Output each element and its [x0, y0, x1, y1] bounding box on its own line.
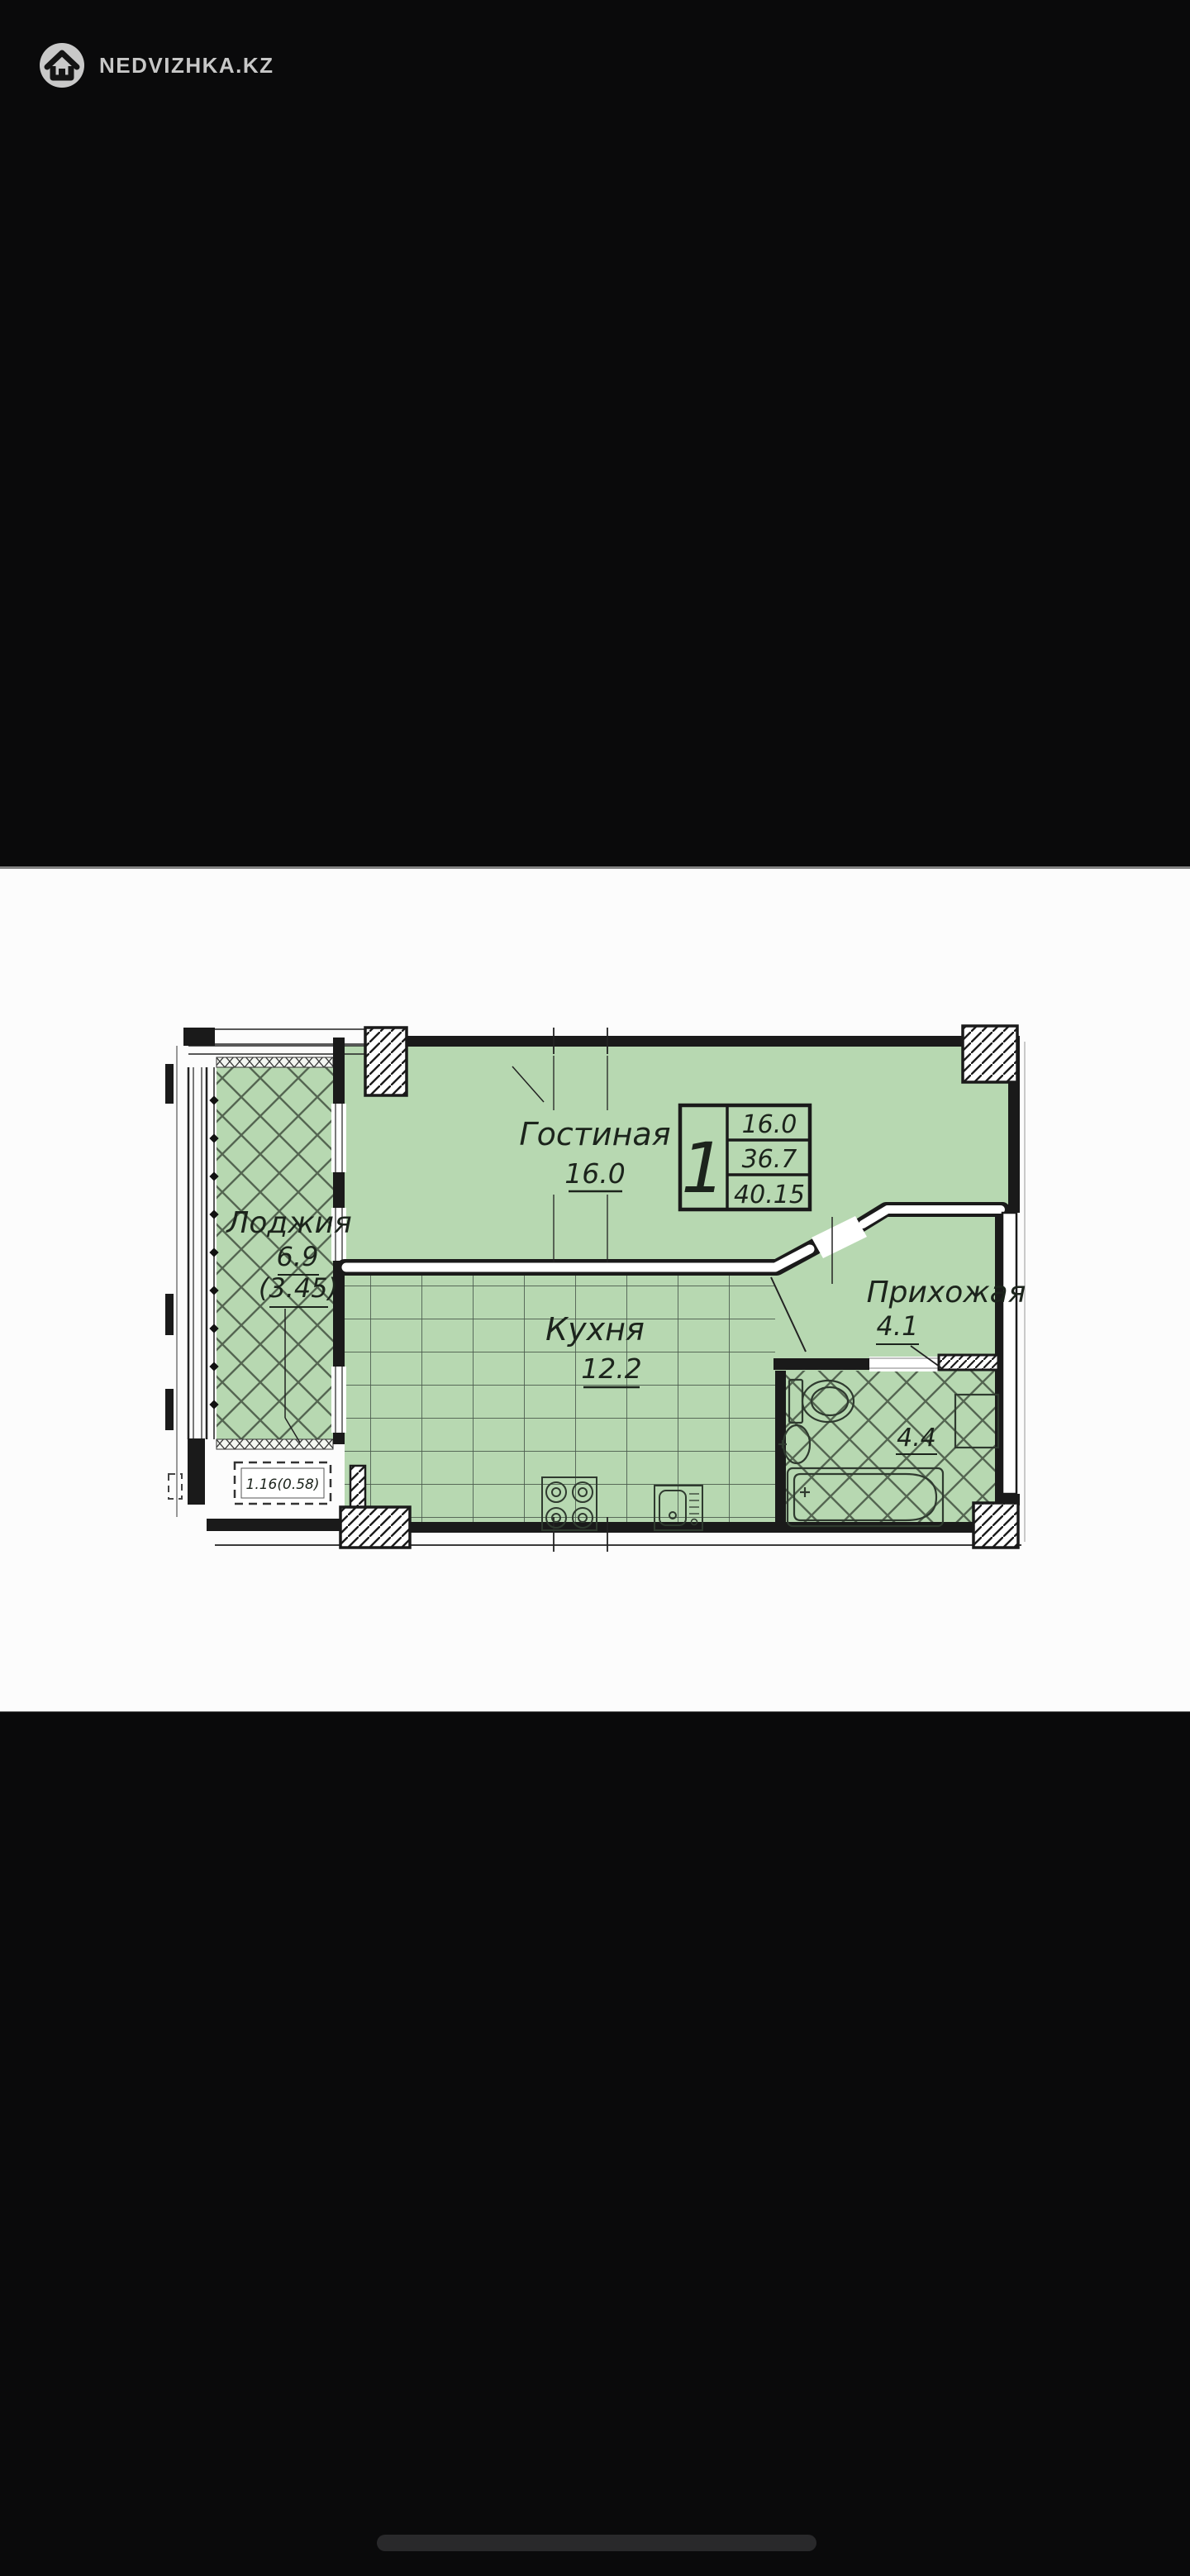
loggia-area-reduced: (3.45) [259, 1272, 338, 1304]
brand-name: NEDVIZHKA.KZ [99, 53, 274, 79]
table-living-area: 16.0 [742, 1110, 797, 1139]
loggia-area: 6.9 [277, 1241, 319, 1272]
floor-plan: 1.16(0.58) 1 16.0 36.7 40.15 Гостиная 16… [165, 1021, 1029, 1575]
app-screen: NEDVIZHKA.KZ [0, 0, 1190, 2576]
kitchen-area: 12.2 [581, 1352, 641, 1385]
listing-photo[interactable]: 1.16(0.58) 1 16.0 36.7 40.15 Гостиная 16… [0, 866, 1190, 1712]
bathroom-area: 4.4 [897, 1424, 936, 1453]
hallway-label: Прихожая [867, 1276, 1026, 1309]
kitchen-label: Кухня [545, 1311, 645, 1348]
table-area: 36.7 [742, 1145, 797, 1174]
niche-label: 1.16(0.58) [246, 1476, 320, 1493]
brand-logo: NEDVIZHKA.KZ [38, 41, 274, 89]
gallery-scrollbar[interactable] [377, 2535, 816, 2551]
hallway-area: 4.1 [877, 1310, 919, 1342]
table-total-area: 40.15 [734, 1181, 805, 1209]
house-icon [38, 41, 86, 89]
right-wall-shaft [1002, 1213, 1016, 1494]
living-room-label: Гостиная [519, 1116, 670, 1152]
loggia-label: Лоджия [225, 1206, 351, 1240]
balcony-niche: 1.16(0.58) [235, 1462, 331, 1504]
table-rooms-count: 1 [681, 1128, 725, 1209]
living-room-area: 16.0 [564, 1157, 625, 1190]
